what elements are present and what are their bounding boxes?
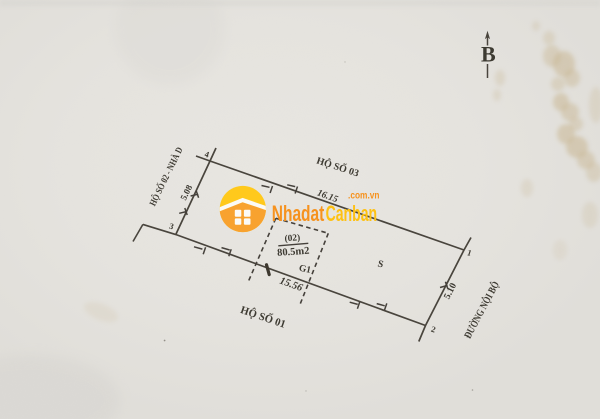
svg-text:Nhadat: Nhadat	[272, 201, 325, 226]
svg-text:B: B	[481, 41, 496, 66]
svg-text:.com.vn: .com.vn	[348, 191, 380, 202]
svg-text:Canban: Canban	[326, 201, 378, 226]
svg-text:80.5m2: 80.5m2	[277, 246, 310, 259]
svg-text:(02): (02)	[284, 232, 300, 244]
